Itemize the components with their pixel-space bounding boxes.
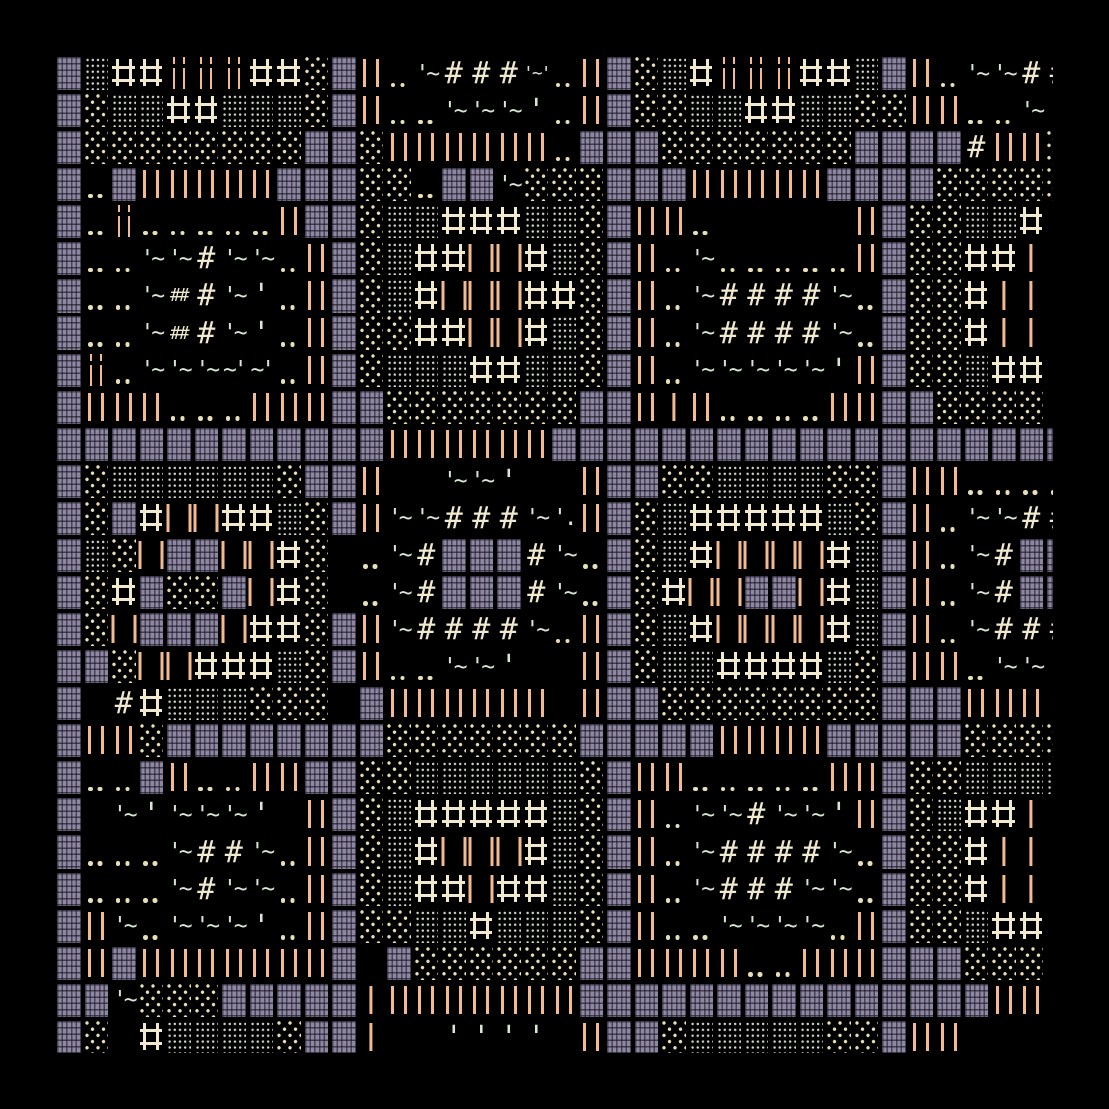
art-cell xyxy=(1018,314,1046,351)
art-cell xyxy=(55,500,83,537)
art-cell: '~ xyxy=(248,240,276,277)
art-cell xyxy=(770,463,798,500)
art-cell: '~ xyxy=(688,314,716,351)
art-cell xyxy=(798,685,826,722)
art-cell xyxy=(138,463,166,500)
art-cell xyxy=(935,277,963,314)
art-cell: # xyxy=(743,314,771,351)
art-cell xyxy=(220,463,248,500)
art-cell: ~' xyxy=(248,352,276,389)
art-cell xyxy=(358,426,386,463)
art-cell xyxy=(55,1019,83,1056)
art-cell xyxy=(110,352,138,389)
art-cell xyxy=(715,759,743,796)
art-cell: '~ xyxy=(440,463,468,500)
art-cell xyxy=(578,796,606,833)
art-cell xyxy=(440,908,468,945)
art-cell xyxy=(523,982,551,1019)
art-cell xyxy=(248,55,276,92)
art-cell xyxy=(578,574,606,611)
art-cell xyxy=(275,55,303,92)
art-cell xyxy=(715,1019,743,1056)
art-cell xyxy=(330,982,358,1019)
art-cell xyxy=(385,240,413,277)
art-cell xyxy=(578,92,606,129)
art-cell xyxy=(193,648,221,685)
art-cell xyxy=(413,871,441,908)
art-cell xyxy=(660,833,688,870)
art-cell xyxy=(495,129,523,166)
art-cell xyxy=(743,500,771,537)
art-cell xyxy=(908,129,936,166)
art-cell xyxy=(55,833,83,870)
art-cell xyxy=(715,611,743,648)
art-cell xyxy=(468,314,496,351)
art-cell xyxy=(990,426,1018,463)
art-cell xyxy=(248,426,276,463)
art-cell xyxy=(1018,945,1046,982)
art-cell xyxy=(440,240,468,277)
art-cell xyxy=(798,982,826,1019)
art-cell xyxy=(578,500,606,537)
art-cell xyxy=(935,759,963,796)
art-cell xyxy=(550,611,578,648)
art-cell xyxy=(303,796,331,833)
art-cell xyxy=(798,945,826,982)
art-cell: '~ xyxy=(715,796,743,833)
art-cell xyxy=(743,389,771,426)
art-cell xyxy=(303,759,331,796)
art-cell xyxy=(440,203,468,240)
art-cell xyxy=(138,722,166,759)
art-cell xyxy=(880,982,908,1019)
art-cell xyxy=(963,982,991,1019)
art-cell xyxy=(440,871,468,908)
art-cell xyxy=(853,92,881,129)
art-cell xyxy=(715,982,743,1019)
art-cell xyxy=(83,908,111,945)
art-cell xyxy=(1018,722,1046,759)
art-cell xyxy=(935,871,963,908)
art-cell xyxy=(688,722,716,759)
art-cell xyxy=(633,352,661,389)
art-cell xyxy=(165,129,193,166)
art-cell xyxy=(688,982,716,1019)
art-cell xyxy=(688,1019,716,1056)
art-cell xyxy=(633,537,661,574)
art-cell xyxy=(303,537,331,574)
art-cell xyxy=(275,759,303,796)
art-cell: ' xyxy=(495,463,523,500)
art-cell xyxy=(798,129,826,166)
art-cell: '~ xyxy=(495,92,523,129)
art-cell xyxy=(523,314,551,351)
art-cell xyxy=(908,389,936,426)
art-cell xyxy=(55,426,83,463)
art-cell xyxy=(303,55,331,92)
art-cell xyxy=(523,796,551,833)
art-cell xyxy=(743,92,771,129)
art-cell xyxy=(715,389,743,426)
art-cell xyxy=(715,463,743,500)
art-cell xyxy=(275,314,303,351)
art-cell xyxy=(770,55,798,92)
art-cell: '~ xyxy=(138,240,166,277)
art-cell xyxy=(688,166,716,203)
art-cell xyxy=(935,314,963,351)
art-cell xyxy=(743,537,771,574)
art-cell xyxy=(770,759,798,796)
art-cell xyxy=(248,463,276,500)
art-cell xyxy=(385,129,413,166)
art-cell xyxy=(578,352,606,389)
art-cell xyxy=(165,166,193,203)
art-cell xyxy=(440,685,468,722)
art-cell xyxy=(83,500,111,537)
art-cell xyxy=(83,352,111,389)
art-cell xyxy=(963,389,991,426)
art-cell xyxy=(193,685,221,722)
art-cell xyxy=(550,277,578,314)
art-cell xyxy=(825,574,853,611)
art-cell xyxy=(688,945,716,982)
art-cell xyxy=(385,277,413,314)
art-cell xyxy=(578,982,606,1019)
art-cell xyxy=(193,129,221,166)
art-cell xyxy=(303,240,331,277)
art-cell xyxy=(935,166,963,203)
art-cell xyxy=(495,277,523,314)
art-cell xyxy=(165,648,193,685)
art-cell xyxy=(110,759,138,796)
art-cell xyxy=(55,648,83,685)
art-cell xyxy=(523,240,551,277)
art-cell xyxy=(605,240,633,277)
art-cell xyxy=(495,426,523,463)
art-cell xyxy=(990,277,1018,314)
art-cell xyxy=(660,982,688,1019)
art-cell xyxy=(853,685,881,722)
art-cell: '~ xyxy=(743,908,771,945)
art-cell xyxy=(138,426,166,463)
art-cell xyxy=(440,945,468,982)
art-cell xyxy=(193,722,221,759)
art-cell: ' xyxy=(248,908,276,945)
art-cell xyxy=(770,945,798,982)
art-cell xyxy=(605,166,633,203)
art-cell xyxy=(495,945,523,982)
art-cell xyxy=(385,426,413,463)
art-cell xyxy=(220,648,248,685)
art-cell xyxy=(908,277,936,314)
art-cell: '~ xyxy=(385,500,413,537)
art-cell xyxy=(743,648,771,685)
art-cell xyxy=(358,55,386,92)
art-cell xyxy=(413,648,441,685)
art-cell xyxy=(798,759,826,796)
art-cell: # xyxy=(193,240,221,277)
art-cell: ~' xyxy=(220,352,248,389)
art-cell xyxy=(303,722,331,759)
art-cell xyxy=(908,500,936,537)
art-cell xyxy=(165,426,193,463)
art-cell xyxy=(193,574,221,611)
art-cell xyxy=(853,796,881,833)
art-cell: ' xyxy=(248,796,276,833)
art-cell xyxy=(880,129,908,166)
art-cell xyxy=(798,463,826,500)
art-cell xyxy=(413,833,441,870)
art-cell xyxy=(1018,426,1046,463)
art-cell xyxy=(55,945,83,982)
art-cell: # xyxy=(495,500,523,537)
art-cell xyxy=(385,648,413,685)
art-cell: '~ xyxy=(193,352,221,389)
art-cell xyxy=(853,611,881,648)
art-cell xyxy=(770,166,798,203)
art-cell xyxy=(743,945,771,982)
art-cell xyxy=(660,759,688,796)
art-cell xyxy=(303,945,331,982)
art-cell xyxy=(688,574,716,611)
art-cell xyxy=(83,426,111,463)
art-cell xyxy=(633,277,661,314)
art-cell xyxy=(303,314,331,351)
art-cell xyxy=(963,871,991,908)
art-cell xyxy=(853,945,881,982)
art-cell xyxy=(165,945,193,982)
art-cell xyxy=(385,945,413,982)
art-cell: '~ xyxy=(770,908,798,945)
art-cell xyxy=(55,611,83,648)
art-cell xyxy=(440,314,468,351)
art-cell xyxy=(468,945,496,982)
art-cell xyxy=(578,240,606,277)
art-cell: # xyxy=(193,871,221,908)
art-cell xyxy=(55,537,83,574)
art-cell xyxy=(880,611,908,648)
art-cell xyxy=(688,685,716,722)
art-cell xyxy=(715,240,743,277)
art-cell xyxy=(550,796,578,833)
art-cell xyxy=(413,982,441,1019)
art-cell xyxy=(908,574,936,611)
art-cell xyxy=(715,426,743,463)
art-cell xyxy=(550,389,578,426)
art-cell xyxy=(468,908,496,945)
art-cell xyxy=(468,277,496,314)
art-cell xyxy=(55,685,83,722)
art-cell xyxy=(303,574,331,611)
art-cell xyxy=(605,203,633,240)
art-cell xyxy=(908,908,936,945)
art-cell xyxy=(495,314,523,351)
art-cell: '~ xyxy=(688,871,716,908)
art-cell xyxy=(385,833,413,870)
art-cell xyxy=(550,908,578,945)
art-cell xyxy=(715,500,743,537)
art-cell xyxy=(880,240,908,277)
art-cell xyxy=(523,389,551,426)
art-cell xyxy=(495,796,523,833)
art-cell xyxy=(440,796,468,833)
art-cell xyxy=(660,611,688,648)
art-cell xyxy=(55,982,83,1019)
art-cell xyxy=(110,945,138,982)
art-cell xyxy=(605,574,633,611)
art-cell xyxy=(578,129,606,166)
art-cell xyxy=(220,166,248,203)
art-cell xyxy=(440,574,468,611)
art-cell xyxy=(440,982,468,1019)
art-cell xyxy=(660,129,688,166)
art-cell xyxy=(963,759,991,796)
art-cell xyxy=(990,685,1018,722)
art-cell: '~ xyxy=(825,277,853,314)
art-cell xyxy=(605,500,633,537)
art-cell: ' xyxy=(495,1019,523,1056)
art-cell: '~ xyxy=(770,796,798,833)
art-cell xyxy=(880,92,908,129)
art-cell xyxy=(605,55,633,92)
art-cell: # xyxy=(523,537,551,574)
art-cell xyxy=(193,203,221,240)
art-cell: ' xyxy=(138,796,166,833)
art-cell xyxy=(990,92,1018,129)
art-cell xyxy=(825,129,853,166)
art-cell: '~ xyxy=(440,92,468,129)
art-cell xyxy=(110,55,138,92)
art-cell xyxy=(495,759,523,796)
art-cell xyxy=(550,871,578,908)
art-cell xyxy=(1018,240,1046,277)
art-cell xyxy=(935,685,963,722)
art-cell xyxy=(825,945,853,982)
art-cell xyxy=(715,648,743,685)
art-cell: '~ xyxy=(138,277,166,314)
art-cell xyxy=(908,314,936,351)
art-cell xyxy=(220,759,248,796)
art-cell xyxy=(55,92,83,129)
art-cell xyxy=(715,945,743,982)
art-cell xyxy=(138,945,166,982)
art-cell xyxy=(523,685,551,722)
art-cell xyxy=(743,722,771,759)
art-cell xyxy=(330,945,358,982)
art-cell xyxy=(908,1019,936,1056)
art-cell xyxy=(743,129,771,166)
art-cell xyxy=(358,463,386,500)
art-cell xyxy=(55,166,83,203)
art-cell xyxy=(193,759,221,796)
art-cell xyxy=(880,500,908,537)
art-cell xyxy=(330,55,358,92)
art-cell xyxy=(275,871,303,908)
art-cell xyxy=(798,92,826,129)
art-cell xyxy=(330,796,358,833)
art-cell xyxy=(770,92,798,129)
art-cell: # xyxy=(990,537,1018,574)
art-cell xyxy=(853,203,881,240)
art-cell xyxy=(880,722,908,759)
art-cell xyxy=(935,908,963,945)
art-cell xyxy=(743,55,771,92)
art-cell xyxy=(853,722,881,759)
art-cell xyxy=(963,945,991,982)
art-cell xyxy=(138,92,166,129)
art-cell xyxy=(853,1019,881,1056)
art-cell xyxy=(743,982,771,1019)
art-cell xyxy=(138,1019,166,1056)
art-cell xyxy=(358,240,386,277)
art-cell xyxy=(358,833,386,870)
art-cell: '~ xyxy=(220,871,248,908)
art-cell xyxy=(83,537,111,574)
art-cell xyxy=(935,945,963,982)
art-cell xyxy=(330,1019,358,1056)
art-cell xyxy=(1018,871,1046,908)
art-cell xyxy=(165,55,193,92)
art-cell xyxy=(633,203,661,240)
art-cell xyxy=(83,945,111,982)
art-cell xyxy=(825,685,853,722)
art-cell xyxy=(908,352,936,389)
art-cell xyxy=(495,871,523,908)
art-cell xyxy=(275,982,303,1019)
art-cell xyxy=(385,722,413,759)
art-cell xyxy=(935,574,963,611)
art-cell xyxy=(550,759,578,796)
art-cell xyxy=(330,908,358,945)
art-cell xyxy=(880,352,908,389)
art-cell xyxy=(633,796,661,833)
art-cell: '~ xyxy=(990,648,1018,685)
art-cell xyxy=(605,908,633,945)
art-cell xyxy=(83,871,111,908)
art-cell xyxy=(633,833,661,870)
art-cell xyxy=(990,463,1018,500)
art-cell xyxy=(880,685,908,722)
art-cell xyxy=(1018,537,1046,574)
art-cell: '~ xyxy=(248,871,276,908)
art-cell xyxy=(798,574,826,611)
art-cell xyxy=(83,314,111,351)
art-cell xyxy=(440,352,468,389)
art-cell xyxy=(963,685,991,722)
art-cell xyxy=(303,389,331,426)
art-cell xyxy=(743,463,771,500)
art-cell xyxy=(798,389,826,426)
art-cell xyxy=(303,908,331,945)
art-cell xyxy=(55,908,83,945)
art-cell xyxy=(550,166,578,203)
art-cell: '~ xyxy=(468,463,496,500)
art-cell: '~ xyxy=(990,500,1018,537)
art-cell xyxy=(385,871,413,908)
art-cell xyxy=(303,1019,331,1056)
art-cell xyxy=(743,426,771,463)
art-cell xyxy=(660,945,688,982)
art-cell xyxy=(578,314,606,351)
art-cell xyxy=(413,722,441,759)
art-cell xyxy=(495,203,523,240)
art-cell: '~ xyxy=(798,871,826,908)
art-cell: ' xyxy=(248,277,276,314)
art-cell xyxy=(1018,685,1046,722)
art-cell xyxy=(385,982,413,1019)
art-cell xyxy=(220,722,248,759)
art-cell: '~ xyxy=(798,352,826,389)
